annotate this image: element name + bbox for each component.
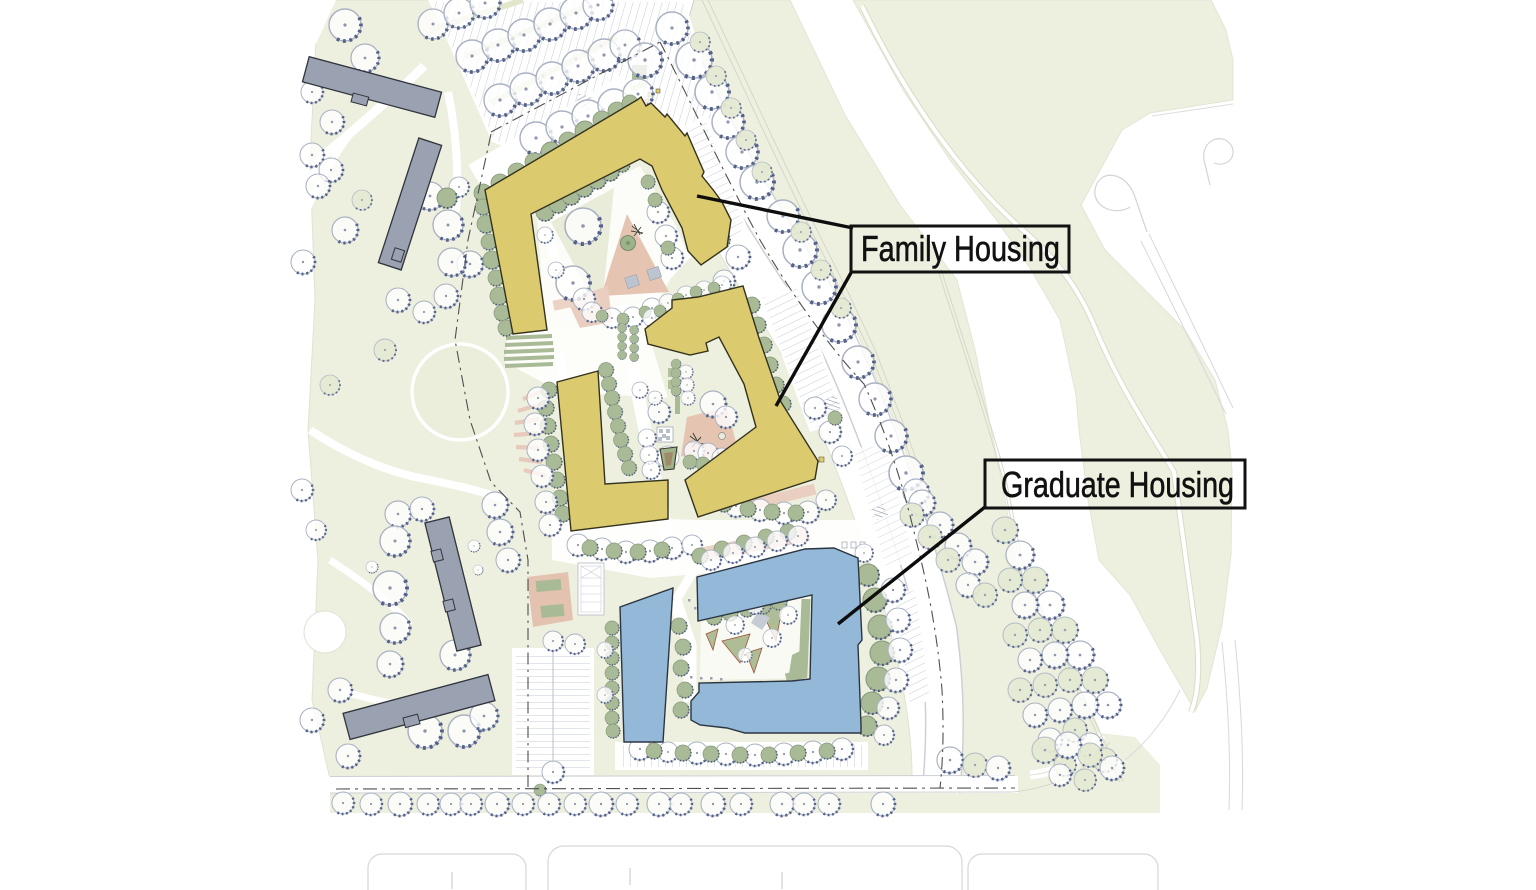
svg-text:Family Housing: Family Housing xyxy=(861,228,1060,269)
svg-text:Graduate Housing: Graduate Housing xyxy=(1001,464,1234,505)
